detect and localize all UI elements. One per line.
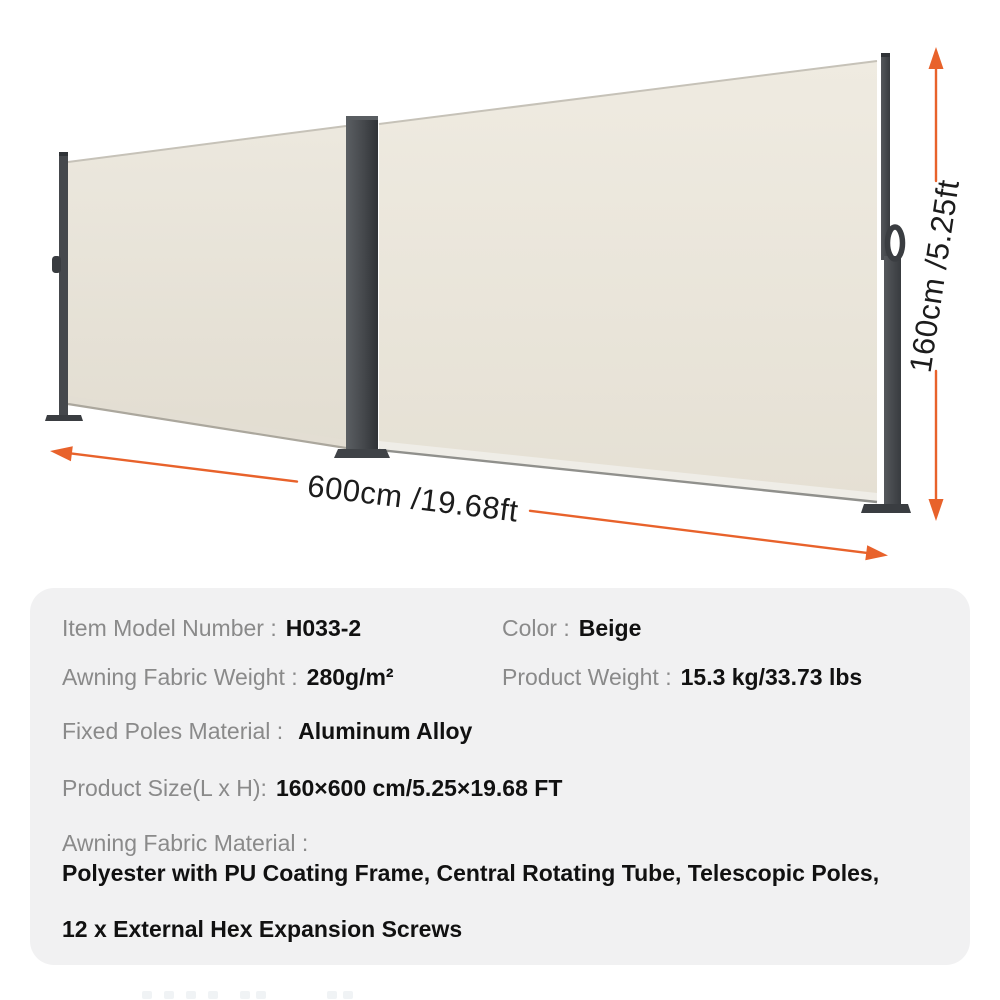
- fabric-material-label: Awning Fabric Material :: [62, 830, 308, 856]
- awning-left-panel: [68, 126, 346, 448]
- height-arrow-down-icon: [929, 499, 944, 521]
- center-pole-cap: [346, 116, 378, 120]
- item-model-label: Item Model Number :: [62, 615, 277, 641]
- height-dimension: 160cm /5.25ft: [903, 47, 966, 521]
- right-pole-pull-handle: [888, 227, 903, 259]
- spec-row-fabric-material-line2: 12 x External Hex Expansion Screws: [62, 915, 462, 943]
- height-dimension-label: 160cm /5.25ft: [903, 177, 966, 374]
- spec-row-item-model: Item Model Number :H033-2: [62, 614, 361, 642]
- product-weight-label: Product Weight :: [502, 664, 672, 690]
- product-size-label: Product Size(L x H):: [62, 775, 267, 801]
- left-pole-cap: [59, 152, 68, 156]
- spec-row-fabric-weight: Awning Fabric Weight :280g/m²: [62, 663, 394, 691]
- spec-row-color: Color :Beige: [502, 614, 641, 642]
- product-size-value: 160×600 cm/5.25×19.68 FT: [276, 775, 562, 801]
- awning-right-panel: [379, 61, 877, 502]
- cropped-bottom-text-remnants: [0, 991, 1000, 1000]
- spec-row-fabric-material-label: Awning Fabric Material :: [62, 829, 308, 857]
- spec-panel: Item Model Number :H033-2 Color :Beige A…: [30, 588, 970, 965]
- product-weight-value: 15.3 kg/33.73 lbs: [681, 664, 863, 690]
- left-panel-fabric: [68, 126, 346, 448]
- color-label: Color :: [502, 615, 570, 641]
- width-dimension-line-right: [530, 511, 870, 554]
- poles-material-value: Aluminum Alloy: [298, 718, 472, 744]
- fabric-weight-label: Awning Fabric Weight :: [62, 664, 298, 690]
- height-arrow-up-icon: [929, 47, 944, 69]
- spec-row-product-weight: Product Weight :15.3 kg/33.73 lbs: [502, 663, 862, 691]
- fabric-material-line2: 12 x External Hex Expansion Screws: [62, 916, 462, 942]
- left-pole-base: [45, 415, 83, 421]
- right-panel-fabric: [379, 61, 877, 502]
- center-pole-tube: [346, 116, 378, 450]
- right-pole-base: [861, 504, 911, 513]
- width-dimension-line-left: [66, 453, 297, 482]
- color-value: Beige: [579, 615, 642, 641]
- center-pole-base: [334, 449, 390, 458]
- item-model-value: H033-2: [286, 615, 361, 641]
- width-arrow-left-icon: [50, 446, 73, 461]
- fabric-material-line1: Polyester with PU Coating Frame, Central…: [62, 860, 879, 886]
- right-pole-lower-tube: [884, 256, 901, 507]
- spec-row-fabric-material-line1: Polyester with PU Coating Frame, Central…: [62, 859, 879, 887]
- spec-row-poles-material: Fixed Poles Material :Aluminum Alloy: [62, 717, 472, 745]
- left-pole-handle: [52, 256, 61, 273]
- poles-material-label: Fixed Poles Material :: [62, 718, 283, 744]
- left-pole-tube: [59, 154, 68, 418]
- fabric-weight-value: 280g/m²: [307, 664, 394, 690]
- width-dimension-label: 600cm /19.68ft: [306, 468, 521, 529]
- spec-row-product-size: Product Size(L x H):160×600 cm/5.25×19.6…: [62, 774, 562, 802]
- width-arrow-right-icon: [865, 545, 888, 560]
- right-pole-cap: [881, 53, 890, 57]
- product-image: 600cm /19.68ft 160cm /5.25ft Item Model …: [0, 0, 1000, 1000]
